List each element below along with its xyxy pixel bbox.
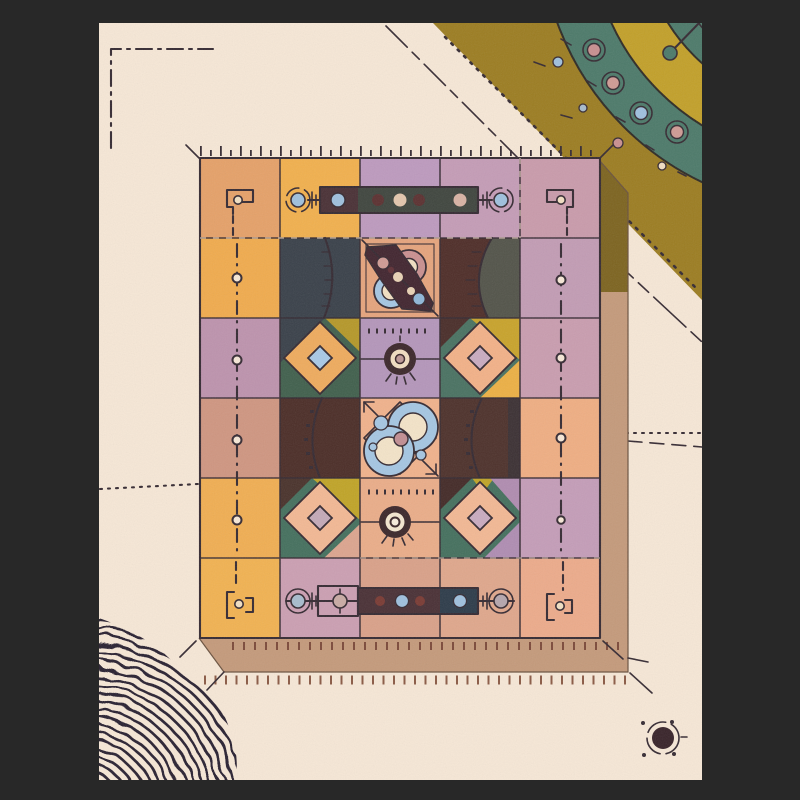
paper-contents xyxy=(0,0,800,800)
artwork-canvas xyxy=(0,0,800,800)
composition xyxy=(0,0,800,800)
grain-overlay xyxy=(99,23,702,780)
